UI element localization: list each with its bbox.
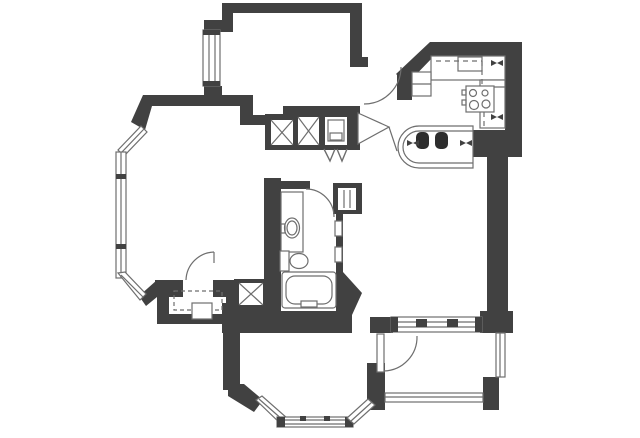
bedroom-top-wall xyxy=(268,311,352,333)
balcony-door-jamb-block xyxy=(370,317,393,333)
top-bedroom-right-step xyxy=(350,57,368,67)
top-bedroom-top-wall xyxy=(227,3,362,13)
balcony-sliding-door-mullion xyxy=(416,319,427,327)
bathroom-niche xyxy=(335,221,342,236)
balcony-sliding-door-mullion xyxy=(447,319,458,327)
bay-window-tick xyxy=(116,244,126,249)
kitchen-counter-end-wall xyxy=(472,130,522,157)
balcony-right-post xyxy=(483,377,499,410)
bathroom-bottom-wall-left xyxy=(222,303,268,333)
balcony-right-block xyxy=(480,311,513,333)
balcony-sliding-door-cap xyxy=(391,317,398,332)
bedroom-bay-window-tick xyxy=(300,416,306,421)
balcony-door-leaf xyxy=(377,334,384,372)
bathroom-left-wall xyxy=(264,178,281,318)
bedroom2-window xyxy=(203,30,220,86)
bar-stool xyxy=(435,132,448,149)
hallway-right-wall xyxy=(487,155,508,317)
bathroom-top-wall xyxy=(281,181,310,189)
bedroom2-window-cap xyxy=(203,81,220,86)
shower-cell xyxy=(338,188,356,210)
toilet-tank xyxy=(280,251,289,271)
kitchen-island xyxy=(398,126,473,168)
bathroom-vanity xyxy=(281,192,303,252)
floor-plan-canvas xyxy=(0,0,640,438)
bathtub-faucet-deck xyxy=(301,301,317,307)
background xyxy=(0,0,640,438)
floor-plan xyxy=(0,0,640,438)
closet-shelf xyxy=(192,303,212,319)
balcony-sliding-door-cap xyxy=(475,317,482,332)
bay-window-tick xyxy=(116,174,126,179)
bedroom-bay-window-tick xyxy=(324,416,330,421)
bathroom-niche xyxy=(335,247,342,262)
bedroom2-window-cap xyxy=(203,30,220,35)
toilet-bowl xyxy=(290,254,308,269)
bedroom-bay-window-cap xyxy=(277,417,285,427)
top-bedroom-right-wall xyxy=(350,13,362,57)
balcony-sliding-door xyxy=(391,317,482,332)
bedroom-left-wall xyxy=(223,330,240,390)
bedroom-bay-window-front xyxy=(277,417,353,427)
bar-stool xyxy=(416,132,429,149)
kitchen-counter-top xyxy=(431,56,505,80)
